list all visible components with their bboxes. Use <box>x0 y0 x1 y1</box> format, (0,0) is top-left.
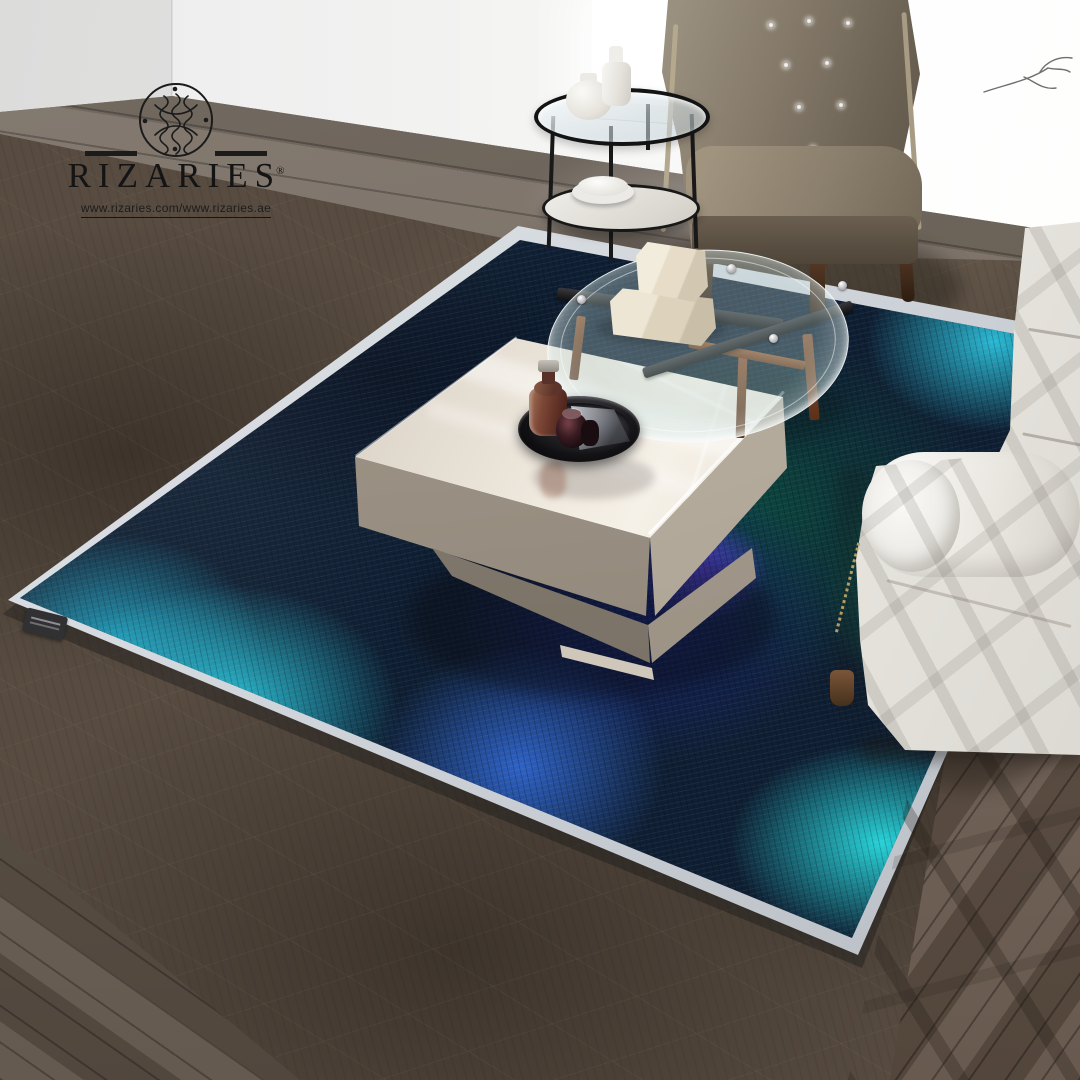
chrome-connector <box>577 295 586 304</box>
tufting-button <box>783 62 789 68</box>
tufting-button <box>838 102 844 108</box>
chrome-connector <box>769 334 778 343</box>
white-dish-set <box>572 180 634 204</box>
tufting-button <box>796 104 802 110</box>
tufting-button <box>824 60 830 66</box>
living-room-rug-product-scene: RIZARIES® www.rizaries.com/www.rizaries.… <box>0 0 1080 1080</box>
chrome-connector <box>727 264 736 273</box>
tall-white-vase <box>602 62 631 106</box>
brand-text: RIZARIES <box>68 156 282 195</box>
brand-url: www.rizaries.com/www.rizaries.ae <box>64 201 288 218</box>
sofa-wood-foot <box>830 670 854 706</box>
bottle-reflection <box>540 462 566 498</box>
branch-sketch-icon <box>980 46 1080 120</box>
small-dark-jar <box>581 420 599 446</box>
monogram-icon <box>139 83 213 157</box>
tufting-button <box>806 18 812 24</box>
brand-name: RIZARIES® <box>64 156 288 196</box>
tufting-button <box>768 22 774 28</box>
chrome-connector <box>838 281 847 290</box>
jar-rim <box>563 409 581 418</box>
tufting-button <box>845 20 851 26</box>
registered-mark: ® <box>276 165 284 177</box>
bottle-cap <box>538 360 559 372</box>
brand-url-text: www.rizaries.com/www.rizaries.ae <box>81 201 271 218</box>
